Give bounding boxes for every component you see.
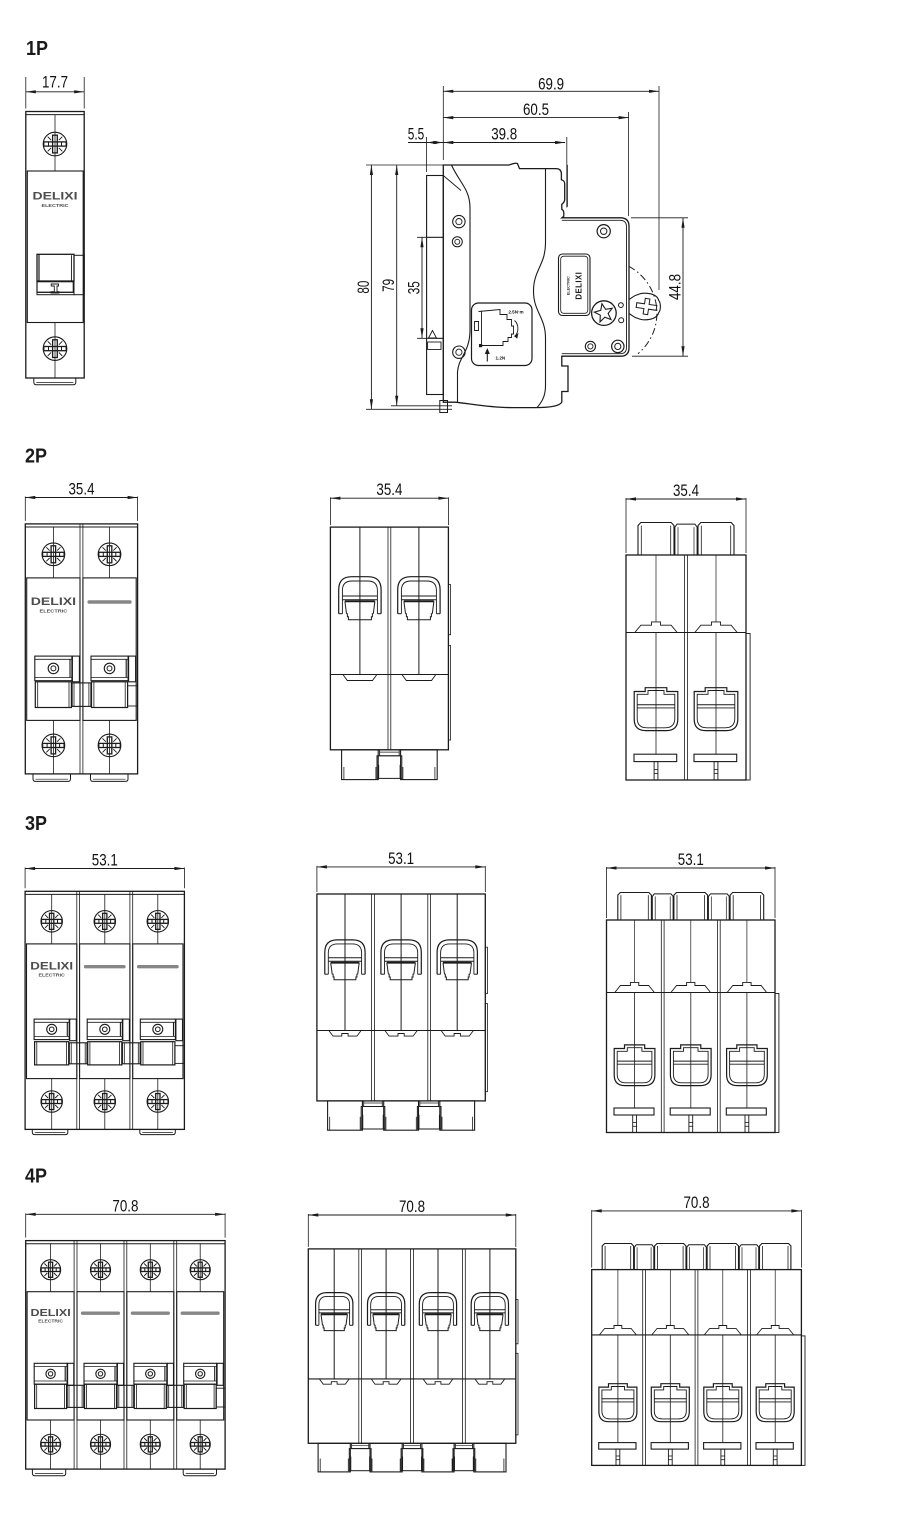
svg-text:2P: 2P <box>25 446 47 468</box>
svg-text:4P: 4P <box>25 1166 47 1188</box>
svg-text:53.1: 53.1 <box>388 850 414 868</box>
svg-text:70.8: 70.8 <box>684 1194 710 1212</box>
svg-text:70.8: 70.8 <box>399 1198 425 1216</box>
svg-text:80: 80 <box>355 281 373 294</box>
svg-text:53.1: 53.1 <box>678 851 704 869</box>
svg-text:5.5: 5.5 <box>408 126 425 144</box>
svg-text:ELECTRIC: ELECTRIC <box>39 609 68 614</box>
svg-text:79: 79 <box>380 279 398 292</box>
svg-text:DELIXI: DELIXI <box>575 272 584 300</box>
svg-text:69.9: 69.9 <box>538 75 564 93</box>
svg-text:DELIXI: DELIXI <box>30 1308 70 1319</box>
svg-text:35.4: 35.4 <box>69 481 95 499</box>
svg-text:53.1: 53.1 <box>92 852 118 870</box>
svg-text:70.8: 70.8 <box>112 1197 138 1215</box>
svg-text:ELECTRIC: ELECTRIC <box>38 1318 63 1323</box>
svg-text:35: 35 <box>406 281 424 294</box>
svg-text:DELIXI: DELIXI <box>30 961 73 973</box>
svg-text:17.7: 17.7 <box>42 74 68 92</box>
svg-text:1P: 1P <box>26 38 48 60</box>
svg-text:1.2N: 1.2N <box>496 356 506 361</box>
svg-text:ELECTRIC: ELECTRIC <box>42 203 70 208</box>
svg-text:ELECTRIC: ELECTRIC <box>567 276 571 295</box>
svg-text:60.5: 60.5 <box>523 101 549 119</box>
svg-text:DELIXI: DELIXI <box>33 191 78 203</box>
svg-text:ELECTRIC: ELECTRIC <box>39 973 66 978</box>
svg-text:44.8: 44.8 <box>667 274 685 300</box>
svg-text:39.8: 39.8 <box>491 126 517 144</box>
svg-text:DELIXI: DELIXI <box>31 596 76 608</box>
svg-text:2.5N·m: 2.5N·m <box>508 310 523 315</box>
svg-text:35.4: 35.4 <box>673 482 699 500</box>
svg-text:3P: 3P <box>25 813 47 835</box>
svg-text:35.4: 35.4 <box>376 481 402 499</box>
